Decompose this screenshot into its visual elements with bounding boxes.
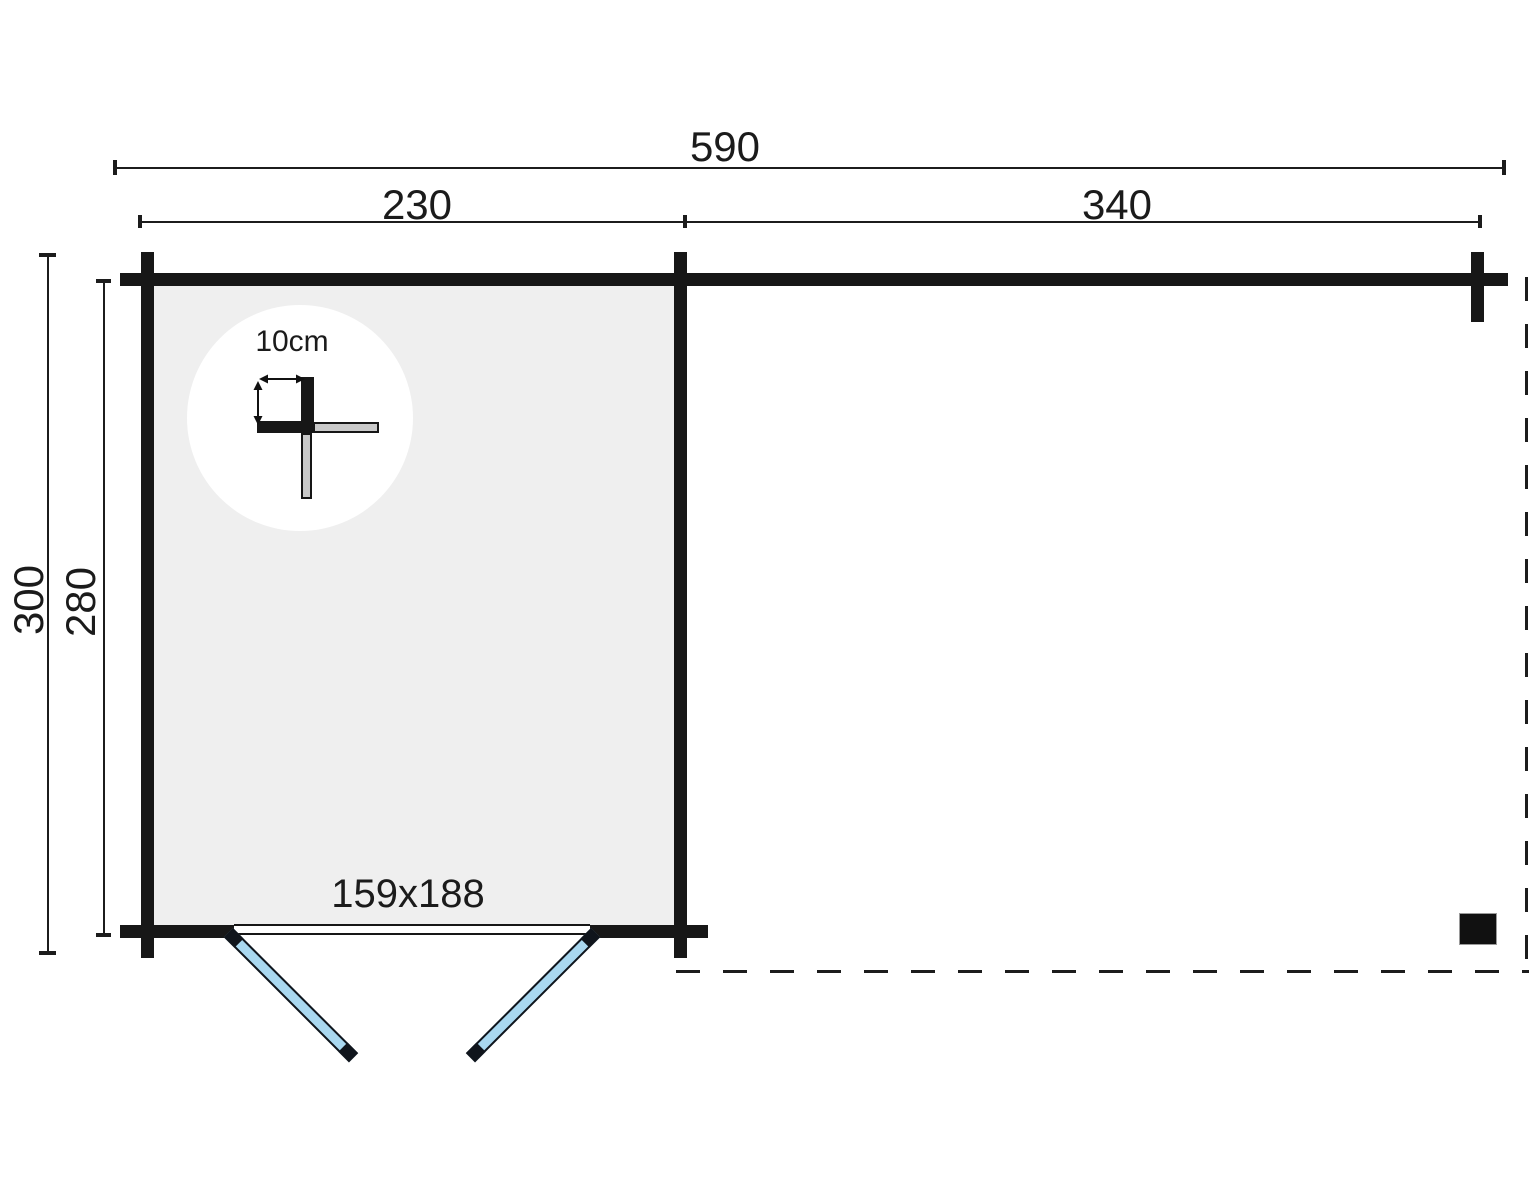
- dim-tick: [1478, 215, 1482, 228]
- wall-left: [141, 252, 154, 958]
- door-leaf-right: [466, 928, 600, 1062]
- wall-thickness-label: 10cm: [222, 325, 362, 359]
- wall-bottom-left: [120, 925, 234, 938]
- detail-log-end-bottom: [301, 433, 312, 499]
- dim-label-total-width: 590: [625, 126, 825, 168]
- canopy-outline-right: [1525, 277, 1528, 973]
- wall-top: [120, 273, 1508, 286]
- detail-log-horizontal: [257, 421, 314, 433]
- dim-tick: [138, 215, 142, 228]
- dim-tick: [683, 215, 687, 228]
- dim-label-outer-depth: 300: [7, 540, 51, 660]
- detail-log-end-right: [313, 422, 379, 433]
- canopy-outline-bottom: [676, 970, 1529, 973]
- door-leaf-left: [224, 928, 358, 1062]
- door-handle-block: [466, 1043, 486, 1063]
- dim-tick: [96, 933, 111, 937]
- floor-plan-canvas: 590 230 340 300 280 10cm 159x188: [0, 0, 1536, 1193]
- dim-label-left-section: 230: [317, 184, 517, 226]
- wall-middle: [674, 252, 687, 958]
- dim-tick: [1502, 160, 1506, 175]
- canopy-post: [1459, 913, 1497, 945]
- dim-label-inner-depth: 280: [59, 542, 103, 662]
- dim-label-right-section: 340: [1017, 184, 1217, 226]
- thickness-arrow-vertical-icon: [252, 381, 264, 425]
- dim-tick: [39, 951, 56, 955]
- dim-tick: [96, 279, 111, 283]
- dim-tick: [113, 160, 117, 175]
- door-size-label: 159x188: [308, 874, 508, 914]
- thickness-arrow-horizontal-icon: [259, 373, 305, 385]
- wall-corner-post-right: [1471, 252, 1484, 322]
- door-threshold: [234, 924, 590, 935]
- dim-tick: [39, 253, 56, 257]
- wall-bottom-right: [589, 925, 708, 938]
- door-handle-block: [338, 1043, 358, 1063]
